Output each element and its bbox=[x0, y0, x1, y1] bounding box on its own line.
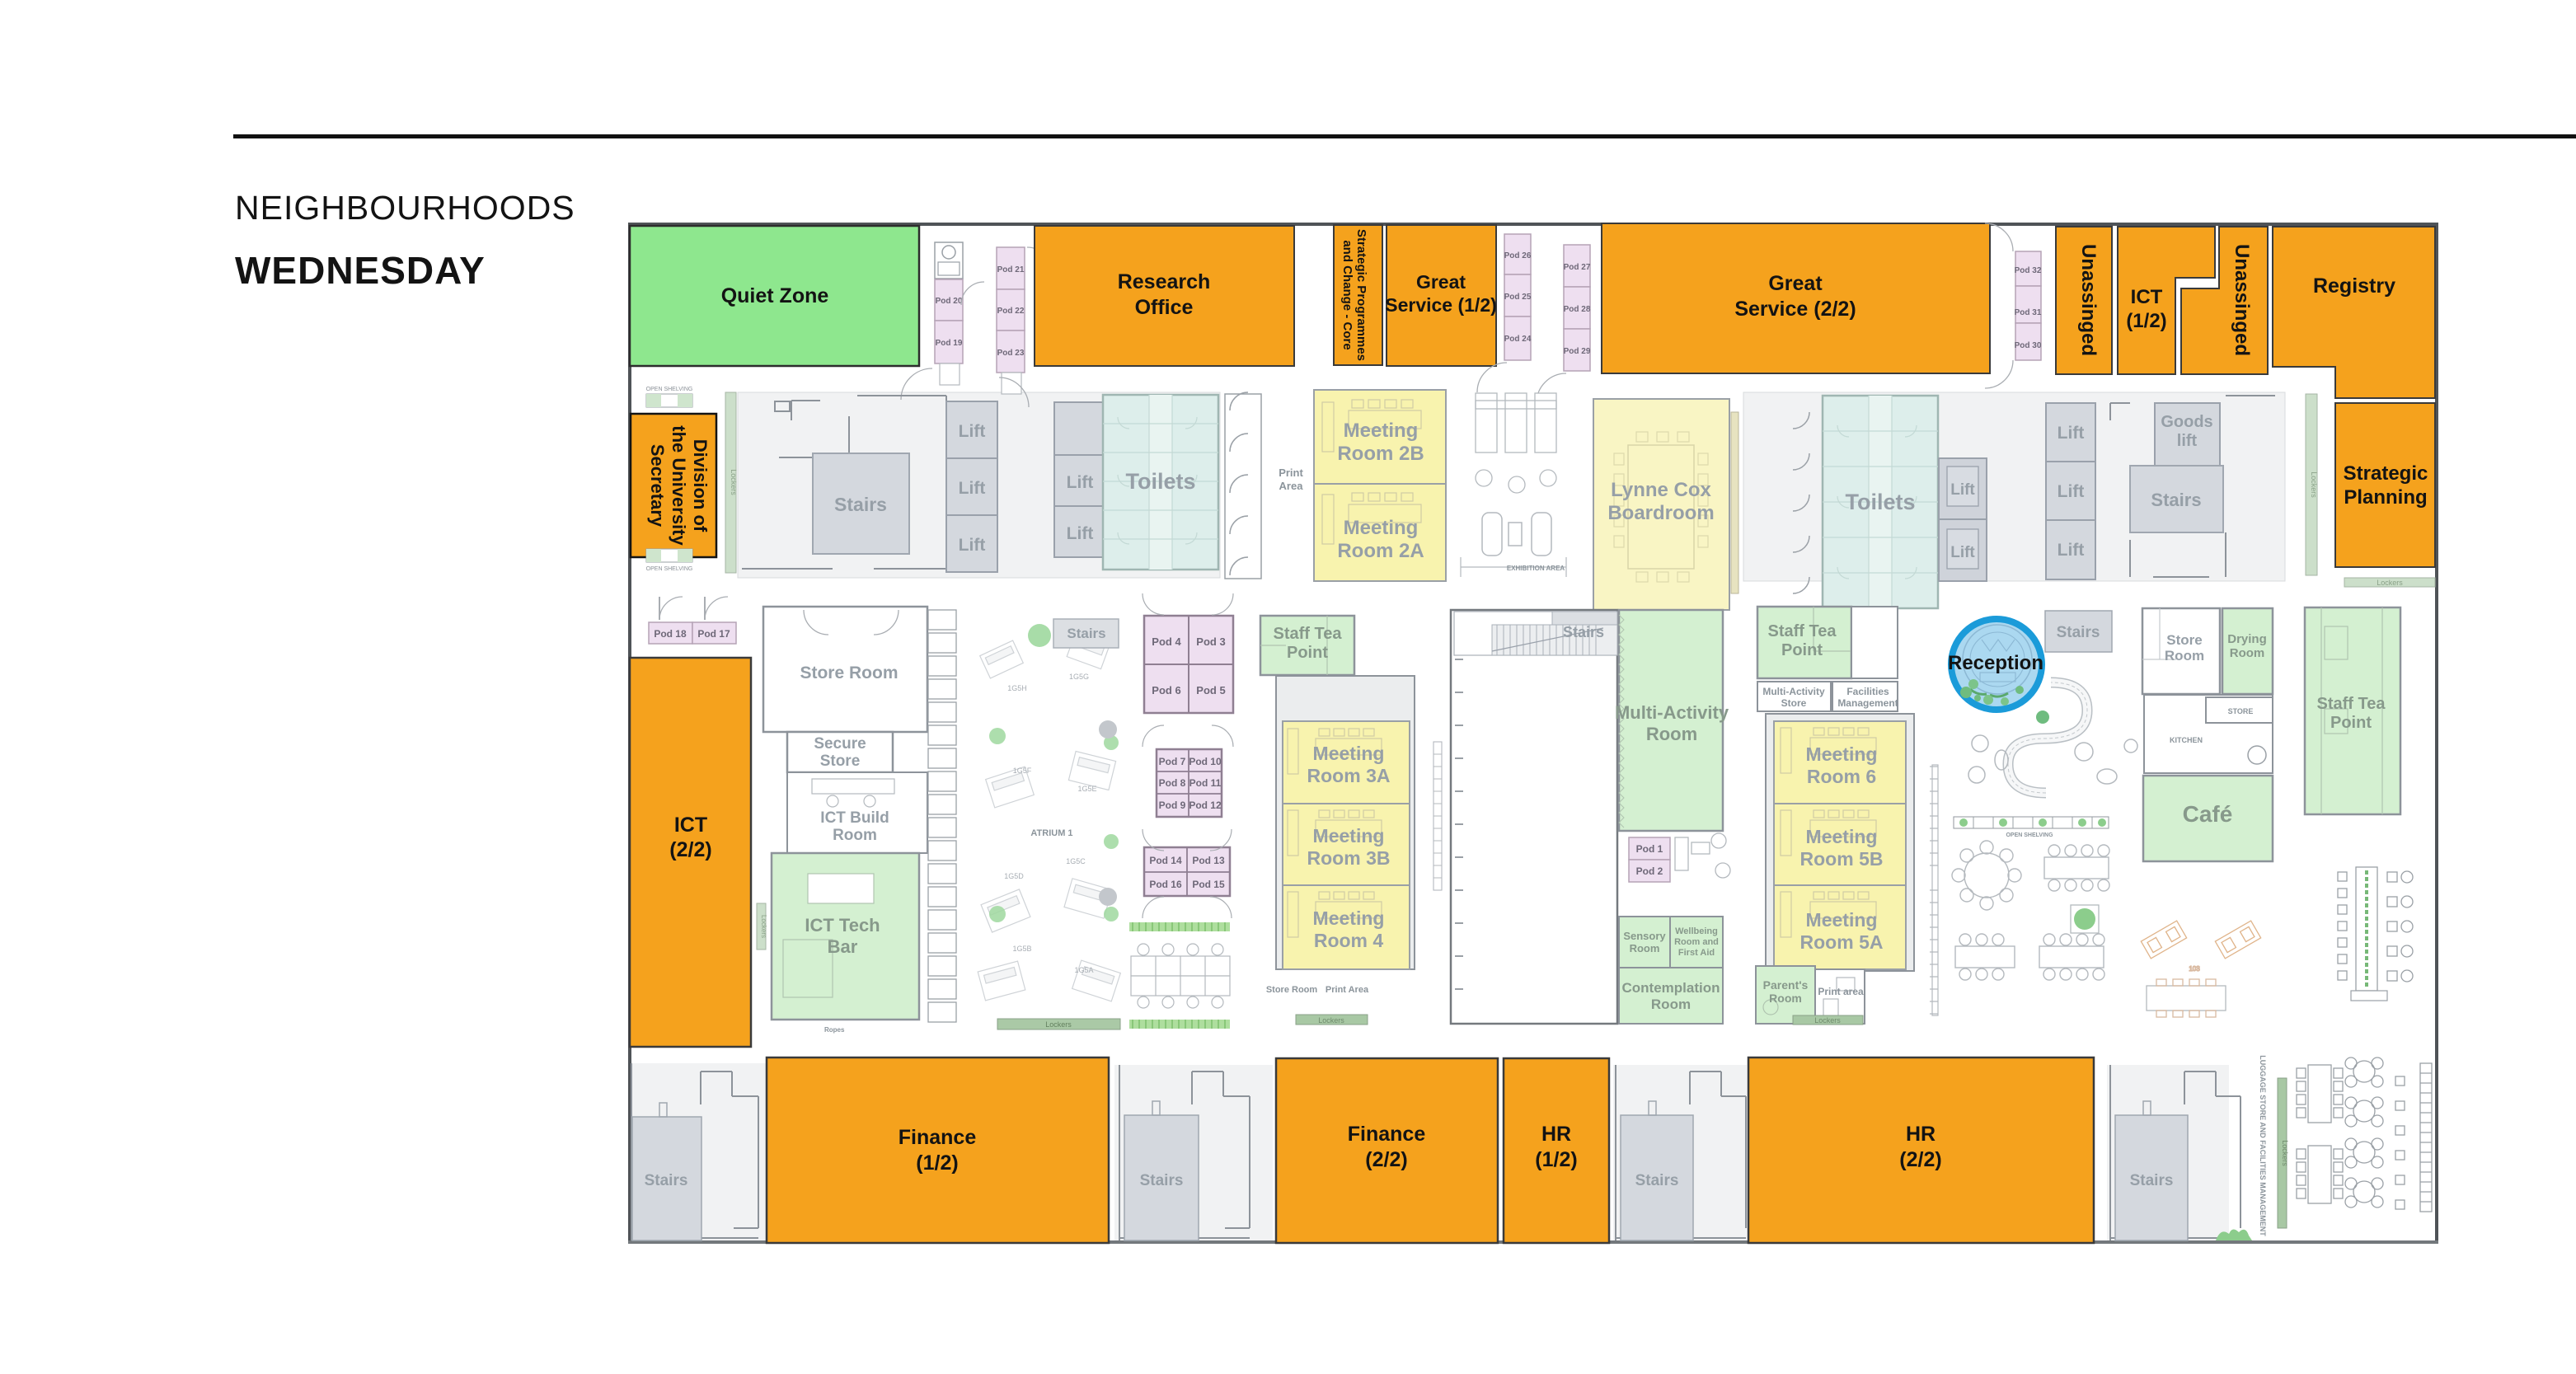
svg-text:Print Area: Print Area bbox=[1326, 985, 1369, 995]
svg-text:Stairs: Stairs bbox=[645, 1172, 688, 1189]
svg-text:Room: Room bbox=[1646, 724, 1697, 744]
svg-text:lift: lift bbox=[2177, 432, 2198, 450]
svg-text:ICT: ICT bbox=[2131, 286, 2163, 308]
svg-text:Pod 20: Pod 20 bbox=[936, 297, 963, 306]
svg-text:(1/2): (1/2) bbox=[2126, 310, 2166, 332]
svg-text:Lockers: Lockers bbox=[730, 469, 738, 495]
svg-text:Room 5A: Room 5A bbox=[1800, 931, 1884, 953]
svg-text:Pod 27: Pod 27 bbox=[1564, 263, 1591, 272]
svg-text:Store: Store bbox=[2166, 632, 2202, 648]
svg-text:Pod 1: Pod 1 bbox=[1636, 843, 1663, 855]
svg-text:Lockers: Lockers bbox=[1045, 1020, 1072, 1029]
svg-text:Meeting: Meeting bbox=[1806, 909, 1878, 931]
svg-text:1G5G: 1G5G bbox=[1069, 673, 1089, 681]
svg-text:(1/2): (1/2) bbox=[916, 1151, 958, 1175]
svg-text:Lift: Lift bbox=[959, 479, 986, 498]
svg-text:Room: Room bbox=[833, 827, 877, 844]
svg-text:Registry: Registry bbox=[2313, 274, 2395, 298]
svg-text:Stairs: Stairs bbox=[1140, 1172, 1184, 1189]
svg-text:Lockers: Lockers bbox=[2310, 471, 2318, 498]
svg-text:Lift: Lift bbox=[2058, 482, 2085, 501]
svg-text:Pod 16: Pod 16 bbox=[1149, 879, 1182, 890]
svg-text:Pod 31: Pod 31 bbox=[2015, 308, 2042, 317]
svg-text:Boardroom: Boardroom bbox=[1607, 502, 1714, 524]
svg-text:Planning: Planning bbox=[2344, 486, 2427, 509]
svg-text:Great: Great bbox=[1768, 272, 1823, 295]
svg-text:103: 103 bbox=[2189, 965, 2200, 973]
svg-text:Print area: Print area bbox=[1818, 986, 1864, 997]
svg-text:Point: Point bbox=[1781, 641, 1823, 659]
svg-text:Lift: Lift bbox=[2058, 541, 2085, 560]
svg-text:Strategic: Strategic bbox=[2344, 462, 2428, 485]
svg-text:Toilets: Toilets bbox=[1125, 469, 1195, 494]
svg-text:Store Room: Store Room bbox=[800, 664, 898, 682]
svg-text:Pod 11: Pod 11 bbox=[1189, 777, 1222, 789]
svg-text:Research: Research bbox=[1118, 270, 1211, 293]
svg-text:Bar: Bar bbox=[828, 936, 858, 957]
svg-text:Pod 4: Pod 4 bbox=[1152, 635, 1181, 648]
svg-text:Pod 25: Pod 25 bbox=[1504, 293, 1532, 302]
svg-text:Pod 8: Pod 8 bbox=[1159, 777, 1186, 789]
svg-text:Pod 3: Pod 3 bbox=[1196, 635, 1225, 648]
svg-text:Pod 19: Pod 19 bbox=[936, 339, 963, 348]
svg-text:Pod 30: Pod 30 bbox=[2015, 341, 2042, 350]
svg-text:Drying: Drying bbox=[2227, 632, 2267, 646]
svg-text:Stairs: Stairs bbox=[1635, 1172, 1679, 1189]
svg-text:ICT Tech: ICT Tech bbox=[805, 915, 880, 936]
svg-text:Lockers: Lockers bbox=[2377, 579, 2403, 587]
svg-text:Pod 17: Pod 17 bbox=[697, 628, 730, 640]
svg-text:Unassinged: Unassinged bbox=[2077, 244, 2100, 356]
svg-text:First Aid: First Aid bbox=[1678, 948, 1715, 958]
svg-text:ICT Build: ICT Build bbox=[820, 809, 889, 827]
svg-text:Ropes: Ropes bbox=[824, 1026, 845, 1034]
svg-text:Lift: Lift bbox=[1950, 544, 1975, 561]
svg-text:Finance: Finance bbox=[899, 1126, 977, 1149]
svg-text:Service (1/2): Service (1/2) bbox=[1385, 294, 1497, 316]
svg-text:Meeting: Meeting bbox=[1344, 420, 1419, 442]
svg-text:Multi-Activity: Multi-Activity bbox=[1615, 702, 1729, 723]
svg-text:1G5B: 1G5B bbox=[1012, 945, 1031, 953]
svg-text:Point: Point bbox=[2330, 714, 2372, 732]
svg-text:Stairs: Stairs bbox=[2057, 624, 2100, 641]
svg-text:OPEN SHELVING: OPEN SHELVING bbox=[646, 566, 693, 572]
svg-text:Pod 2: Pod 2 bbox=[1636, 865, 1663, 877]
svg-text:Facilities: Facilities bbox=[1846, 686, 1889, 697]
svg-text:Multi-Activity: Multi-Activity bbox=[1762, 686, 1825, 697]
svg-text:EXHIBITION AREA: EXHIBITION AREA bbox=[1507, 565, 1565, 572]
svg-text:STORE: STORE bbox=[2228, 707, 2254, 715]
svg-text:Pod 23: Pod 23 bbox=[997, 349, 1025, 358]
svg-text:Room: Room bbox=[2165, 648, 2204, 664]
svg-text:WEDNESDAY: WEDNESDAY bbox=[235, 249, 486, 292]
svg-text:Sensory: Sensory bbox=[1623, 930, 1666, 942]
svg-text:Meeting: Meeting bbox=[1344, 517, 1419, 539]
svg-text:Lift: Lift bbox=[1067, 524, 1094, 543]
svg-text:Unassinged: Unassinged bbox=[2231, 244, 2253, 356]
svg-text:Service (2/2): Service (2/2) bbox=[1734, 298, 1856, 321]
svg-text:HR: HR bbox=[1541, 1123, 1571, 1146]
svg-text:Pod 26: Pod 26 bbox=[1504, 251, 1532, 260]
svg-text:OPEN SHELVING: OPEN SHELVING bbox=[2006, 832, 2053, 838]
svg-text:Room 5B: Room 5B bbox=[1800, 848, 1884, 870]
svg-text:ICT: ICT bbox=[674, 814, 707, 837]
svg-text:Pod 18: Pod 18 bbox=[654, 628, 687, 640]
svg-text:Store: Store bbox=[1781, 697, 1807, 709]
svg-text:Pod 22: Pod 22 bbox=[997, 307, 1025, 316]
svg-text:1G5C: 1G5C bbox=[1066, 857, 1086, 865]
svg-text:Room: Room bbox=[2230, 646, 2265, 660]
svg-text:Room: Room bbox=[1630, 942, 1660, 954]
svg-text:Management: Management bbox=[1837, 697, 1898, 709]
svg-text:PrintArea: PrintArea bbox=[1279, 467, 1303, 492]
svg-text:HR: HR bbox=[1906, 1123, 1936, 1146]
svg-text:ATRIUM 1: ATRIUM 1 bbox=[1030, 828, 1072, 838]
svg-text:Stairs: Stairs bbox=[2130, 1172, 2174, 1189]
svg-text:Secure: Secure bbox=[814, 735, 866, 753]
svg-text:(2/2): (2/2) bbox=[1899, 1148, 1941, 1171]
svg-text:Pod 13: Pod 13 bbox=[1192, 855, 1225, 866]
svg-text:Office: Office bbox=[1135, 296, 1194, 319]
svg-text:Lift: Lift bbox=[959, 536, 986, 555]
svg-text:Pod 32: Pod 32 bbox=[2015, 266, 2042, 275]
svg-text:Lockers: Lockers bbox=[2281, 1140, 2289, 1166]
svg-text:LUGGAGE STORE AND FACILITIES M: LUGGAGE STORE AND FACILITIES MANAGEMENT bbox=[2259, 1055, 2267, 1236]
svg-text:Pod 9: Pod 9 bbox=[1159, 800, 1186, 811]
svg-text:Meeting: Meeting bbox=[1806, 826, 1878, 847]
svg-text:Lift: Lift bbox=[1950, 481, 1975, 499]
svg-text:Lift: Lift bbox=[1067, 473, 1094, 492]
svg-text:Lift: Lift bbox=[2058, 424, 2085, 443]
svg-text:Pod 7: Pod 7 bbox=[1159, 756, 1186, 767]
svg-text:Store Room: Store Room bbox=[1266, 985, 1318, 995]
svg-text:Staff Tea: Staff Tea bbox=[1768, 622, 1837, 640]
svg-text:Room and: Room and bbox=[1674, 937, 1719, 947]
svg-text:1G5D: 1G5D bbox=[1004, 872, 1024, 880]
svg-text:Room 2B: Room 2B bbox=[1337, 443, 1424, 465]
svg-text:Lockers: Lockers bbox=[1318, 1016, 1344, 1025]
svg-text:Room 3B: Room 3B bbox=[1307, 847, 1391, 869]
svg-text:Room: Room bbox=[1651, 997, 1691, 1012]
svg-text:Point: Point bbox=[1287, 644, 1328, 662]
svg-text:Store: Store bbox=[820, 753, 861, 770]
svg-text:Pod 28: Pod 28 bbox=[1564, 305, 1591, 314]
svg-text:Lockers: Lockers bbox=[760, 915, 767, 938]
svg-text:Pod 10: Pod 10 bbox=[1189, 756, 1222, 767]
svg-text:Stairs: Stairs bbox=[834, 494, 887, 515]
svg-text:Stairs: Stairs bbox=[1067, 626, 1105, 641]
svg-text:1G5H: 1G5H bbox=[1007, 684, 1027, 692]
svg-text:Quiet Zone: Quiet Zone bbox=[721, 284, 829, 307]
svg-text:KITCHEN: KITCHEN bbox=[2170, 736, 2203, 744]
svg-text:OPEN SHELVING: OPEN SHELVING bbox=[646, 387, 693, 392]
svg-text:Lift: Lift bbox=[959, 422, 986, 441]
svg-text:Toilets: Toilets bbox=[1845, 490, 1915, 514]
svg-text:Pod 15: Pod 15 bbox=[1192, 879, 1225, 890]
svg-text:Wellbeing: Wellbeing bbox=[1675, 926, 1718, 936]
svg-text:(1/2): (1/2) bbox=[1535, 1148, 1577, 1171]
svg-text:1G5A: 1G5A bbox=[1074, 966, 1093, 974]
svg-text:Lockers: Lockers bbox=[1814, 1016, 1841, 1025]
svg-text:Staff Tea: Staff Tea bbox=[2317, 695, 2386, 713]
svg-text:Meeting: Meeting bbox=[1806, 743, 1878, 765]
svg-text:Pod 6: Pod 6 bbox=[1152, 684, 1180, 696]
svg-text:Reception: Reception bbox=[1948, 652, 2043, 674]
svg-text:Lynne Cox: Lynne Cox bbox=[1611, 479, 1711, 501]
svg-text:Meeting: Meeting bbox=[1313, 743, 1385, 764]
svg-text:Room 3A: Room 3A bbox=[1307, 765, 1391, 786]
svg-text:Meeting: Meeting bbox=[1313, 907, 1385, 929]
svg-text:Parent's: Parent's bbox=[1763, 978, 1809, 992]
svg-text:Pod 29: Pod 29 bbox=[1564, 347, 1591, 356]
svg-text:Stairs: Stairs bbox=[1563, 624, 1604, 640]
svg-text:Contemplation: Contemplation bbox=[1622, 980, 1720, 996]
svg-text:Pod 21: Pod 21 bbox=[997, 265, 1025, 274]
svg-text:Room 4: Room 4 bbox=[1314, 930, 1384, 951]
svg-text:Stairs: Stairs bbox=[2151, 490, 2201, 510]
svg-text:Goods: Goods bbox=[2161, 413, 2212, 431]
svg-text:1G5F: 1G5F bbox=[1013, 767, 1032, 775]
svg-text:Great: Great bbox=[1416, 271, 1466, 293]
svg-text:Finance: Finance bbox=[1348, 1123, 1426, 1146]
svg-text:1G5E: 1G5E bbox=[1077, 785, 1096, 793]
svg-text:NEIGHBOURHOODS: NEIGHBOURHOODS bbox=[235, 189, 575, 227]
svg-text:Pod 12: Pod 12 bbox=[1189, 800, 1222, 811]
svg-text:(2/2): (2/2) bbox=[669, 838, 711, 861]
svg-text:Room: Room bbox=[1769, 992, 1802, 1005]
svg-text:Room 2A: Room 2A bbox=[1337, 540, 1424, 562]
svg-text:Staff Tea: Staff Tea bbox=[1274, 625, 1343, 643]
svg-text:Pod 24: Pod 24 bbox=[1504, 335, 1532, 344]
svg-text:Strategic Programmesand Change: Strategic Programmesand Change - Core bbox=[1340, 229, 1368, 361]
svg-text:Room 6: Room 6 bbox=[1807, 766, 1876, 787]
svg-text:Pod 5: Pod 5 bbox=[1196, 684, 1225, 696]
svg-text:Café: Café bbox=[2183, 801, 2233, 827]
svg-text:Pod 14: Pod 14 bbox=[1149, 855, 1182, 866]
svg-text:Meeting: Meeting bbox=[1313, 825, 1385, 846]
svg-text:(2/2): (2/2) bbox=[1365, 1148, 1407, 1171]
